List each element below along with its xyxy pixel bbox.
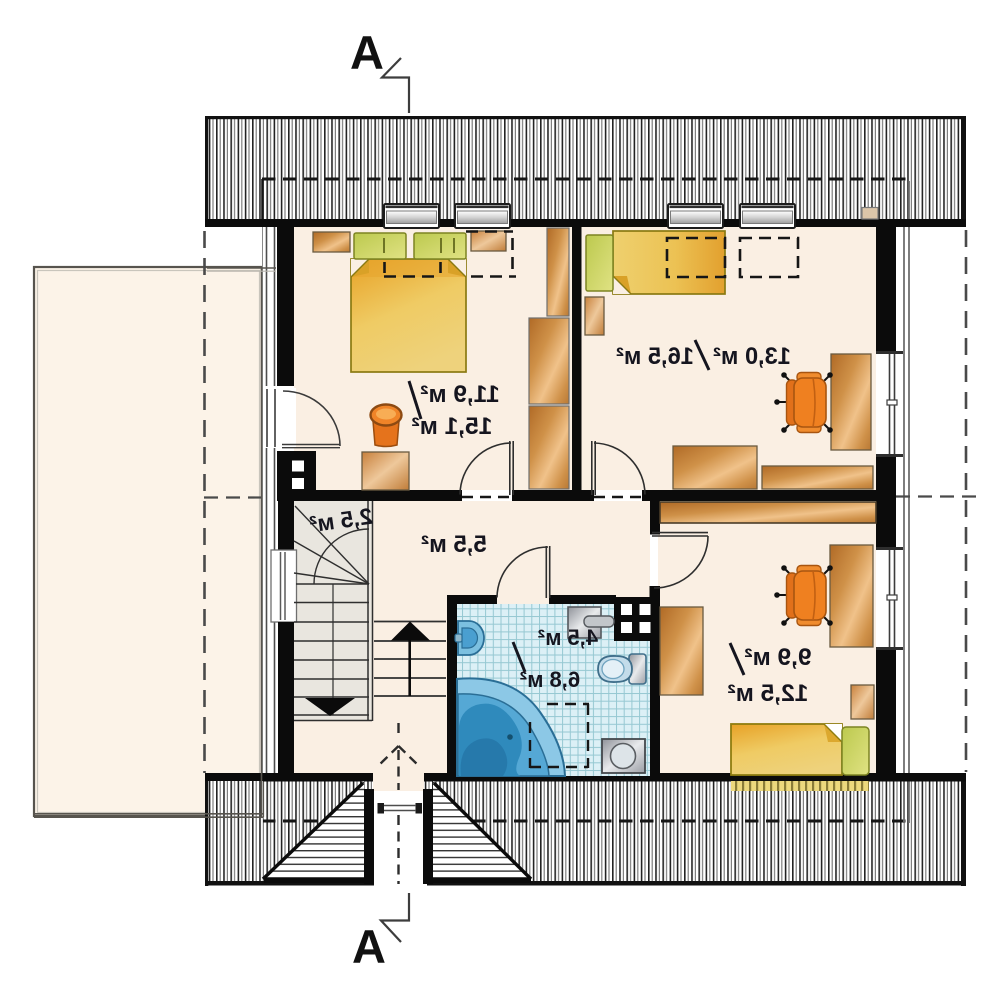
svg-text:A: A <box>352 920 386 973</box>
svg-text:6,8 м²: 6,8 м² <box>520 667 580 692</box>
svg-text:16,5 м²: 16,5 м² <box>616 344 694 370</box>
svg-text:4,5 м²: 4,5 м² <box>538 625 598 650</box>
svg-text:13,0 м²: 13,0 м² <box>713 344 791 370</box>
svg-text:15,1 м²: 15,1 м² <box>412 413 493 440</box>
svg-text:12,5 м²: 12,5 м² <box>728 680 809 707</box>
svg-text:5,5 м²: 5,5 м² <box>421 531 487 558</box>
svg-text:A: A <box>350 26 384 79</box>
svg-text:11,9 м²: 11,9 м² <box>420 381 499 408</box>
svg-text:9,9 м²: 9,9 м² <box>744 644 811 671</box>
